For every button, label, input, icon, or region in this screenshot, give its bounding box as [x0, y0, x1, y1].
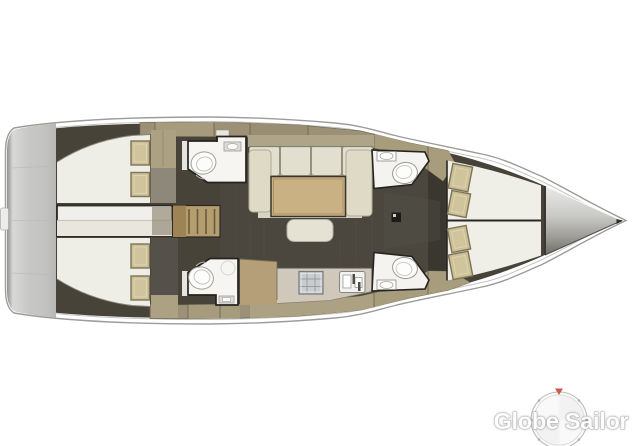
svg-text:Globe Sailor: Globe Sailor	[494, 408, 629, 434]
